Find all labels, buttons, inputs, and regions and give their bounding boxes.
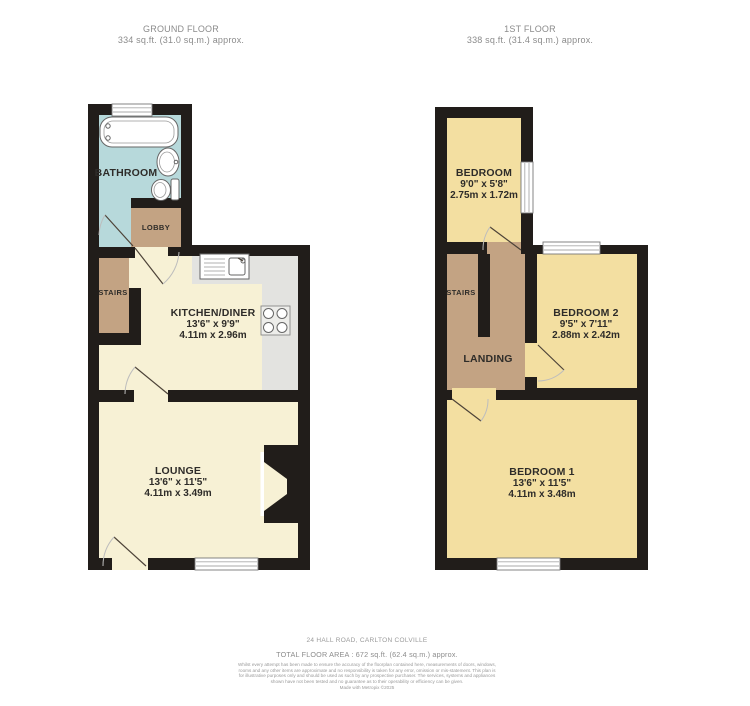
fireplace xyxy=(261,445,299,523)
footer-disclaimer-block: Whilst every attempt has been made to en… xyxy=(237,662,497,691)
svg-text:BEDROOM 2: BEDROOM 2 xyxy=(553,307,618,319)
window-lounge xyxy=(195,558,258,570)
doorway-front-door xyxy=(112,558,148,570)
ground-floor-plan: BATHROOM LOBBY STAIRS KITCHEN/DINER 13'6… xyxy=(88,104,310,570)
svg-text:4.11m x 3.48m: 4.11m x 3.48m xyxy=(508,489,575,500)
property-address: 24 HALL ROAD, CARLTON COLVILLE xyxy=(117,637,617,644)
floorplan-canvas: BATHROOM LOBBY STAIRS KITCHEN/DINER 13'6… xyxy=(0,0,750,706)
doorway-kitchen-lounge xyxy=(134,390,168,402)
toilet xyxy=(152,179,180,201)
made-with-credit: Made with Metropix ©2025 xyxy=(237,685,497,691)
room-label-lobby: LOBBY xyxy=(142,223,170,232)
svg-text:13'6" x 11'5": 13'6" x 11'5" xyxy=(513,478,571,489)
total-floor-area: TOTAL FLOOR AREA : 672 sq.ft. (62.4 sq.m… xyxy=(117,650,617,659)
svg-text:13'6" x 9'9": 13'6" x 9'9" xyxy=(186,319,239,330)
room-label-bedroom2: BEDROOM 2 9'5" x 7'11" 2.88m x 2.42m xyxy=(552,307,620,341)
room-label-bedroom1: BEDROOM 1 13'6" x 11'5" 4.11m x 3.48m xyxy=(508,466,575,500)
kitchen-sink xyxy=(200,254,249,279)
svg-text:KITCHEN/DINER: KITCHEN/DINER xyxy=(171,307,256,319)
room-label-stairs-first: STAIRS xyxy=(446,288,475,297)
svg-text:9'0" x 5'8": 9'0" x 5'8" xyxy=(460,179,508,190)
doorway-bedroom xyxy=(487,242,521,254)
svg-text:9'5" x 7'11": 9'5" x 7'11" xyxy=(560,319,613,330)
room-label-bathroom: BATHROOM xyxy=(95,167,158,179)
window-bedroom1 xyxy=(497,558,560,570)
svg-text:BEDROOM: BEDROOM xyxy=(456,167,512,179)
svg-text:2.75m x 1.72m: 2.75m x 1.72m xyxy=(450,190,518,201)
svg-text:13'6" x 11'5": 13'6" x 11'5" xyxy=(149,477,207,488)
opening-above-stairs xyxy=(129,258,141,288)
window-bedroom xyxy=(521,162,533,213)
disclaimer-text: Whilst every attempt has been made to en… xyxy=(237,662,497,684)
bathtub xyxy=(100,117,178,147)
hob xyxy=(261,306,290,335)
svg-text:BEDROOM 1: BEDROOM 1 xyxy=(509,466,574,478)
doorway-bedroom1 xyxy=(452,388,496,400)
svg-text:LOUNGE: LOUNGE xyxy=(155,465,201,477)
window-bedroom2 xyxy=(543,242,600,254)
svg-text:4.11m x 3.49m: 4.11m x 3.49m xyxy=(144,488,211,499)
bathroom-sink xyxy=(157,148,179,176)
doorway-bedroom2 xyxy=(525,343,537,377)
svg-text:2.88m x 2.42m: 2.88m x 2.42m xyxy=(552,330,620,341)
room-label-landing: LANDING xyxy=(463,353,512,365)
first-floor-plan: BEDROOM 9'0" x 5'8" 2.75m x 1.72m STAIRS… xyxy=(435,107,648,570)
window-bathroom xyxy=(112,104,152,116)
svg-text:4.11m x 2.96m: 4.11m x 2.96m xyxy=(179,330,246,341)
room-label-stairs-ground: STAIRS xyxy=(98,288,127,297)
